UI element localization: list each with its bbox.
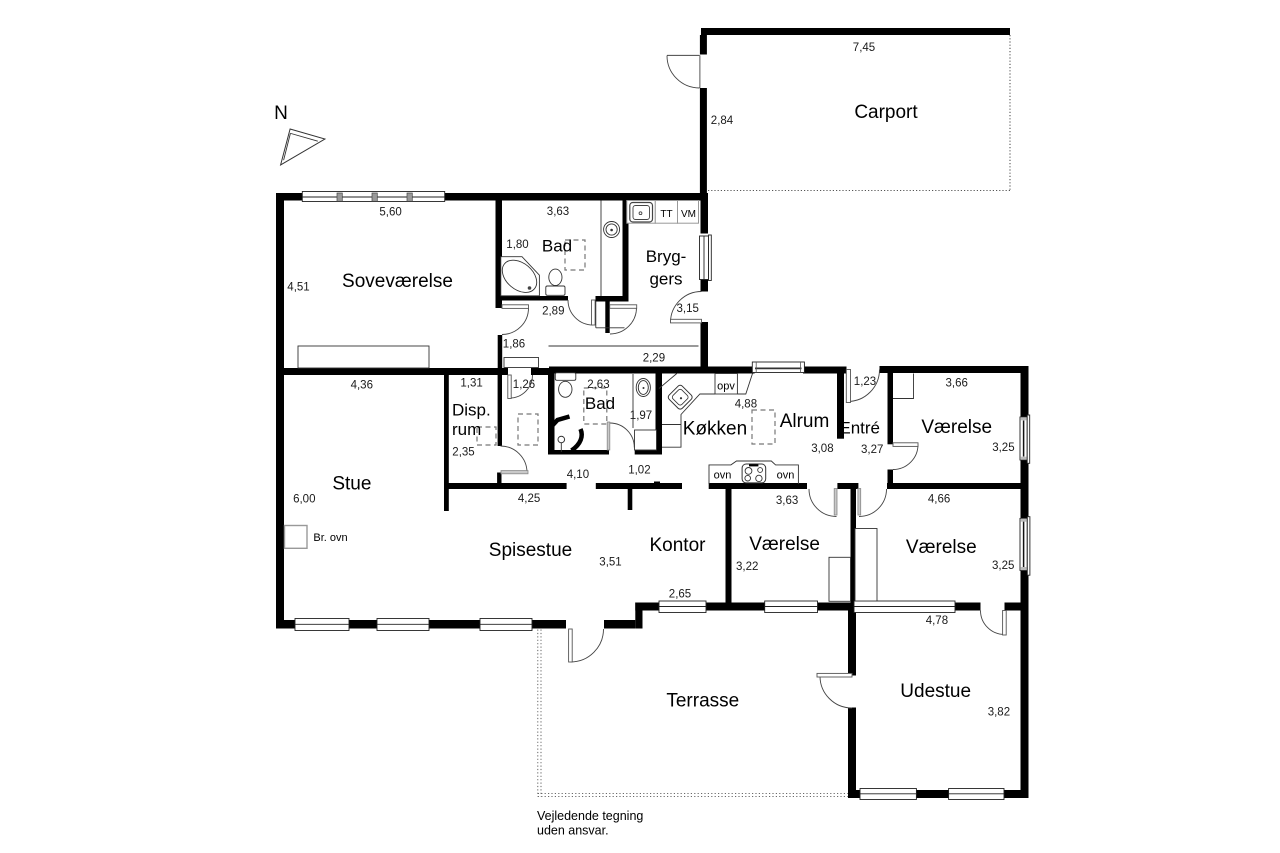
svg-text:Soveværelse: Soveværelse	[342, 271, 453, 292]
svg-text:2,84: 2,84	[711, 115, 734, 127]
svg-text:3,27: 3,27	[861, 444, 883, 456]
svg-text:gers: gers	[649, 270, 682, 289]
svg-text:Udestue: Udestue	[900, 681, 971, 702]
svg-text:N: N	[274, 103, 288, 124]
svg-text:Værelse: Værelse	[921, 417, 992, 438]
svg-text:2,63: 2,63	[587, 379, 609, 391]
svg-text:4,78: 4,78	[926, 615, 948, 627]
svg-text:2,89: 2,89	[542, 305, 564, 317]
svg-text:1,26: 1,26	[513, 379, 535, 391]
svg-text:3,63: 3,63	[547, 206, 569, 218]
svg-text:3,63: 3,63	[776, 495, 798, 507]
svg-text:4,36: 4,36	[351, 379, 373, 391]
svg-text:4,10: 4,10	[567, 469, 589, 481]
svg-text:2,35: 2,35	[452, 447, 474, 459]
svg-text:3,08: 3,08	[811, 443, 833, 455]
svg-text:2,65: 2,65	[669, 589, 691, 601]
svg-text:Alrum: Alrum	[780, 411, 830, 432]
svg-text:Bryg-: Bryg-	[646, 247, 687, 266]
svg-text:2,29: 2,29	[643, 353, 665, 365]
svg-text:3,51: 3,51	[599, 556, 621, 568]
svg-text:6,00: 6,00	[293, 494, 315, 506]
svg-text:4,25: 4,25	[518, 493, 540, 505]
svg-text:TT: TT	[660, 209, 672, 220]
svg-text:3,25: 3,25	[992, 560, 1014, 572]
svg-text:7,45: 7,45	[853, 42, 875, 54]
svg-text:rum: rum	[452, 420, 481, 439]
svg-text:3,66: 3,66	[946, 378, 968, 390]
svg-text:4,88: 4,88	[735, 399, 757, 411]
svg-text:ovn: ovn	[777, 469, 795, 481]
svg-text:3,15: 3,15	[677, 303, 699, 315]
svg-text:1,23: 1,23	[854, 376, 876, 388]
svg-text:3,22: 3,22	[736, 561, 758, 573]
svg-text:3,25: 3,25	[992, 442, 1014, 454]
svg-text:Bad: Bad	[542, 237, 572, 256]
svg-text:1,97: 1,97	[630, 410, 652, 422]
svg-text:Værelse: Værelse	[749, 534, 820, 555]
svg-text:5,60: 5,60	[379, 207, 401, 219]
svg-text:Entré: Entré	[839, 418, 880, 437]
svg-text:4,66: 4,66	[928, 494, 950, 506]
svg-text:Terrasse: Terrasse	[666, 690, 739, 711]
svg-text:opv: opv	[717, 381, 735, 393]
svg-text:Køkken: Køkken	[683, 419, 747, 440]
svg-text:Carport: Carport	[854, 102, 918, 123]
svg-text:1,86: 1,86	[503, 339, 525, 351]
svg-text:4,51: 4,51	[287, 281, 309, 293]
svg-text:3,82: 3,82	[988, 706, 1010, 718]
svg-text:1,02: 1,02	[628, 465, 650, 477]
svg-text:Disp.: Disp.	[452, 400, 491, 419]
svg-text:Spisestue: Spisestue	[489, 540, 572, 561]
svg-text:uden ansvar.: uden ansvar.	[537, 824, 609, 838]
svg-text:1,80: 1,80	[506, 239, 528, 251]
svg-text:VM: VM	[681, 209, 696, 220]
svg-text:Stue: Stue	[332, 473, 371, 494]
svg-text:Bad: Bad	[585, 394, 615, 413]
svg-text:Br. ovn: Br. ovn	[313, 532, 347, 544]
svg-text:ovn: ovn	[714, 469, 732, 481]
svg-text:Kontor: Kontor	[650, 535, 707, 556]
svg-text:1,31: 1,31	[460, 378, 482, 390]
svg-text:Værelse: Værelse	[906, 537, 977, 558]
svg-text:Vejledende tegning: Vejledende tegning	[537, 809, 643, 823]
